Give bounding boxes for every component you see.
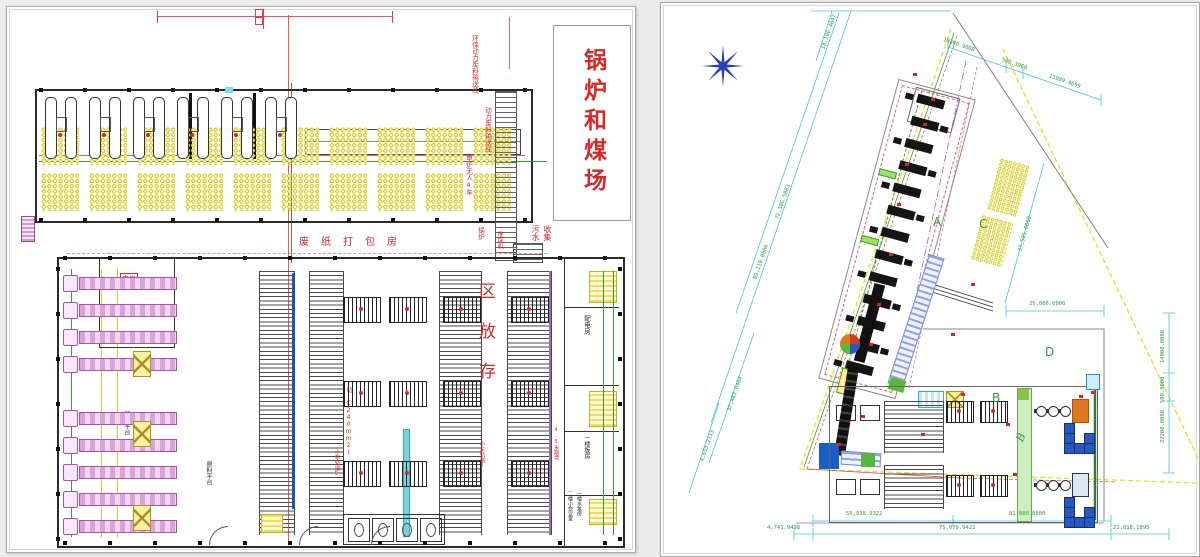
winder-machine <box>389 297 427 323</box>
truck <box>63 356 179 372</box>
cyan-marker <box>225 87 233 93</box>
truck-cab <box>63 464 78 481</box>
truck <box>63 518 179 534</box>
machine-cell <box>276 117 287 132</box>
room-label-3: 二楼小会议室 <box>567 491 572 521</box>
column-dot <box>378 256 382 260</box>
column-dot <box>303 88 307 92</box>
dock-leveler <box>133 505 151 531</box>
dim-bot-5: 21,818.1895 <box>1113 525 1149 531</box>
column-dot <box>333 541 337 545</box>
dim-line-red-top <box>157 16 393 17</box>
red-tick <box>897 203 901 206</box>
column-dot <box>435 88 439 92</box>
dryer-comb <box>980 475 1008 497</box>
area-d-label: D <box>1045 345 1054 359</box>
conveyor-lane <box>309 271 344 535</box>
dock-leveler <box>133 421 151 447</box>
winder-machine <box>511 381 549 407</box>
machine-dot <box>991 483 995 487</box>
winder-machine <box>443 461 481 487</box>
machine-group <box>177 97 211 159</box>
column-dot <box>259 88 263 92</box>
storage-char-1: 区 <box>479 277 496 302</box>
column-dot <box>347 218 351 222</box>
paper-roll-cluster <box>41 173 79 211</box>
room-label-2: 一楼板房 <box>583 435 589 459</box>
machine-dot <box>359 391 363 395</box>
machine-group <box>45 97 79 159</box>
toilet-stall <box>420 518 442 542</box>
truck-trailer <box>79 358 177 371</box>
column-dot <box>108 256 112 260</box>
machine-dot <box>527 391 531 395</box>
truck-trailer <box>79 439 177 452</box>
truck-cab <box>63 275 78 292</box>
paper-roll-cluster <box>281 173 319 211</box>
red-tick <box>961 393 965 396</box>
paper-roll-cluster <box>425 127 463 165</box>
machine-dot <box>957 483 961 487</box>
lane-hatch-2 <box>884 465 944 509</box>
toilet-fixture <box>426 523 436 537</box>
red-tick <box>861 415 865 418</box>
column-dot <box>56 537 60 541</box>
shaft-disc <box>1060 480 1071 491</box>
green-strip <box>1017 388 1032 522</box>
door-arc <box>299 526 318 545</box>
paper-roll-cluster <box>233 173 271 211</box>
area-c-label: C <box>979 217 987 231</box>
dim-tick <box>157 11 158 23</box>
column-dot <box>215 88 219 92</box>
column-dot <box>513 541 517 545</box>
red-tick <box>1091 391 1095 394</box>
column-dot <box>153 256 157 260</box>
truck <box>63 437 179 453</box>
column-dot <box>171 88 175 92</box>
toilet-fixture <box>402 523 412 537</box>
red-tick <box>913 73 917 76</box>
column-dot <box>243 256 247 260</box>
boiler-coal-yard-box: 锅炉和煤场 <box>553 25 631 221</box>
winder-machine <box>343 297 381 323</box>
room-divider <box>565 431 619 432</box>
shaft-disc <box>1036 480 1047 491</box>
conveyor-label-1: 环保动力废料输送线 <box>471 35 478 94</box>
lane-hatch-1 <box>884 401 944 453</box>
column-dot <box>198 256 202 260</box>
paper-roll-cluster <box>425 173 463 211</box>
column-dot <box>127 88 131 92</box>
machine-dot <box>405 471 409 475</box>
column-dot <box>108 541 112 545</box>
column-dot <box>83 218 87 222</box>
column-dot <box>153 541 157 545</box>
column-dot <box>243 541 247 545</box>
column-dot <box>83 88 87 92</box>
column-dot <box>479 218 483 222</box>
dock-leveler <box>133 351 151 377</box>
press-unit <box>836 479 856 495</box>
machine-dot <box>190 133 194 137</box>
blue-tank <box>1086 374 1100 390</box>
column-dot <box>56 267 60 271</box>
toilet-stall <box>348 518 370 542</box>
dim-right-2: 500.0000 <box>1160 361 1166 403</box>
paper-roll-cluster <box>377 173 415 211</box>
column-dot <box>198 541 202 545</box>
truck-trailer <box>79 520 177 533</box>
machine-dot <box>405 391 409 395</box>
column-dot <box>288 541 292 545</box>
column-dot <box>333 256 337 260</box>
red-tick <box>1079 395 1083 398</box>
truck <box>63 329 179 345</box>
ramp-hatch <box>21 216 35 242</box>
column-dot <box>603 256 607 260</box>
winder-machine <box>443 381 481 407</box>
rotary-drum-fan <box>839 333 861 355</box>
truck-trailer <box>79 412 177 425</box>
green-dim-line <box>603 271 604 535</box>
column-dot <box>56 492 60 496</box>
room-label-1: 配电房 <box>583 315 590 335</box>
corridor-line <box>549 271 551 535</box>
machine-group <box>89 97 123 159</box>
truck-cab <box>63 518 78 535</box>
column-dot <box>468 256 472 260</box>
machine-cell <box>144 117 155 132</box>
left-drawing-sheet[interactable]: 锅炉和煤场 环保动力废料输送线 动力废料输送线 电炉无人4车 锅炉 废纸打包房 … <box>6 6 636 553</box>
paper-roll-cluster <box>329 127 367 165</box>
pipe-elbow <box>1084 443 1095 454</box>
machine-cell <box>188 117 199 132</box>
room-divider <box>565 495 619 496</box>
sewage-label-2: 收集 <box>543 225 551 241</box>
machine-dot <box>459 391 463 395</box>
column-dot <box>523 88 527 92</box>
column-dot <box>259 218 263 222</box>
shaft-disc <box>1036 406 1047 417</box>
truck <box>63 491 179 507</box>
column-dot <box>558 256 562 260</box>
paper-roll-cluster <box>185 173 223 211</box>
dim-tick <box>263 9 264 29</box>
dim-line-mid <box>67 253 547 254</box>
winder-machine <box>343 381 381 407</box>
winder-machine <box>389 461 427 487</box>
column-dot <box>63 541 67 545</box>
dim-bot-4: 75,079.9422 <box>939 525 975 531</box>
storage-char-3: 存 <box>479 357 496 382</box>
column-dot <box>603 541 607 545</box>
red-tick <box>1013 473 1017 476</box>
dim-mark <box>255 9 263 17</box>
dryer-comb <box>946 401 974 423</box>
room-label-4: 一楼水泵房 <box>576 491 581 516</box>
column-dot <box>558 541 562 545</box>
boiler-small-label: 锅炉 <box>477 227 484 240</box>
truck <box>63 302 179 318</box>
boiler-coal-yard-label: 锅炉和煤场 <box>581 48 604 198</box>
area-a-label: A <box>933 215 941 229</box>
paper-roll-cluster <box>137 173 175 211</box>
red-tick <box>1006 423 1010 426</box>
end-unit <box>1072 399 1089 423</box>
column-dot <box>391 88 395 92</box>
machine-dot <box>459 307 463 311</box>
column-dot <box>618 402 622 406</box>
column-dot <box>618 357 622 361</box>
green-dim-line <box>613 271 614 535</box>
press-unit <box>860 405 880 421</box>
column-dot <box>423 541 427 545</box>
machine-dot <box>146 133 150 137</box>
building-b-machine-hall <box>829 386 1098 523</box>
column-dot <box>303 218 307 222</box>
pipe-elbow <box>1084 517 1095 528</box>
green-strip-head <box>1018 389 1029 400</box>
column-dot <box>39 218 43 222</box>
stacker-label: 堆垛机 <box>496 231 502 249</box>
machine-dot <box>527 307 531 311</box>
shaft-disc <box>1060 406 1071 417</box>
dryer-comb <box>946 475 974 497</box>
truck-cab <box>63 329 78 346</box>
right-drawing-sheet[interactable]: A C B D B 10360.9008 500.3960 15900.4699… <box>660 2 1200 557</box>
winder-machine <box>443 297 481 323</box>
truck-cab <box>63 410 78 427</box>
red-tick <box>905 163 909 166</box>
north-star-icon <box>701 44 745 88</box>
conveyor-lane <box>259 271 295 535</box>
toilet-stall <box>396 518 418 542</box>
machine-group <box>133 97 167 159</box>
dim-tick <box>392 11 393 23</box>
column-dot <box>63 256 67 260</box>
toilet-fixture <box>354 523 364 537</box>
red-tick <box>921 433 925 436</box>
red-tick <box>889 253 893 256</box>
winder-machine <box>343 461 381 487</box>
shaft-disc <box>1048 406 1059 417</box>
pipe-elbow <box>1084 507 1095 518</box>
truck <box>63 275 179 291</box>
paper-roll-cluster <box>377 127 415 165</box>
bottom-building-production-hall: 电房 卸货平台 原料平台 切(C240mm2) 区 放 存 小车轨道3 小车轨道… <box>57 257 625 548</box>
baling-room-label: 废纸打包房 <box>299 233 409 248</box>
column-dot <box>56 447 60 451</box>
machine-cell <box>56 117 67 132</box>
dim-bot-2: 81,000.0000 <box>1009 511 1045 517</box>
column-dot <box>618 537 622 541</box>
cable-tray <box>292 273 295 509</box>
column-dot <box>56 402 60 406</box>
winder-machine <box>511 461 549 487</box>
truck-cab <box>63 491 78 508</box>
area-b-label: B <box>992 391 1000 405</box>
wall-note: 4.5米隔墙 <box>553 427 558 460</box>
machine-group <box>221 97 255 159</box>
machine-dot <box>957 409 961 413</box>
column-dot <box>347 88 351 92</box>
truck-trailer <box>79 331 177 344</box>
truck-trailer <box>79 304 177 317</box>
column-dot <box>171 218 175 222</box>
dim-mid-2: 25,006.0000 <box>1029 301 1065 307</box>
shaft-disc <box>1048 480 1059 491</box>
paper-roll-cluster <box>329 173 367 211</box>
machine-cell <box>100 117 111 132</box>
column-dot <box>618 492 622 496</box>
machine-dot <box>234 133 238 137</box>
conveyor-label-3: 电炉无人4车 <box>465 155 472 196</box>
truck-cab <box>63 356 78 373</box>
column-dot <box>215 218 219 222</box>
machine-dot <box>278 133 282 137</box>
column-dot <box>618 447 622 451</box>
pipe-elbow <box>1084 433 1095 444</box>
conveyor-label-2: 动力废料输送线 <box>484 107 491 153</box>
column-dot <box>435 218 439 222</box>
red-tick <box>971 283 975 286</box>
pump-room-hatch <box>261 514 283 533</box>
storage-char-2: 放 <box>479 317 496 342</box>
winder-machine <box>389 381 427 407</box>
column-dot <box>513 256 517 260</box>
red-tick <box>869 343 873 346</box>
press-unit <box>860 479 880 495</box>
column-dot <box>479 88 483 92</box>
cad-workspace: 锅炉和煤场 环保动力废料输送线 动力废料输送线 电炉无人4车 锅炉 废纸打包房 … <box>0 0 1200 557</box>
truck-trailer <box>79 493 177 506</box>
dim-bot-3: 4,741.9498 <box>767 525 800 531</box>
column-dot <box>618 312 622 316</box>
red-tick <box>951 333 955 336</box>
machine-dot <box>405 307 409 311</box>
paper-roll-cluster <box>89 173 127 211</box>
column-dot <box>391 218 395 222</box>
end-unit <box>1072 473 1089 497</box>
machine-dot <box>58 133 62 137</box>
press-unit <box>836 405 856 421</box>
machine-group <box>265 97 299 159</box>
column-dot <box>127 218 131 222</box>
truck-trailer <box>79 466 177 479</box>
toilet-room <box>343 514 445 545</box>
column-dot <box>288 256 292 260</box>
track5-label: 小车轨道5 <box>333 449 339 477</box>
top-building-coal-shed <box>35 89 533 223</box>
red-tick <box>877 303 881 306</box>
door-arc <box>209 526 228 545</box>
material-platform-label: 原料平台 <box>205 461 211 485</box>
dim-bot-1: 55,938.9322 <box>846 511 882 517</box>
truck-cab <box>63 437 78 454</box>
column-dot <box>56 312 60 316</box>
room-divider <box>565 307 619 308</box>
truck <box>63 410 179 426</box>
machine-dot <box>459 471 463 475</box>
dim-mark <box>255 17 263 25</box>
red-tick <box>923 123 927 126</box>
machine-dot <box>102 133 106 137</box>
dim-tick-vertical <box>509 17 510 69</box>
rooms-column: 配电房 一楼板房 二楼小会议室 一楼水泵房 <box>564 259 619 546</box>
machine-dot <box>359 307 363 311</box>
column-dot <box>378 541 382 545</box>
column-dot <box>618 267 622 271</box>
red-tick <box>931 98 935 101</box>
column-dot <box>56 357 60 361</box>
dim-right-1: 14000.0000 <box>1160 321 1166 363</box>
machine-dot <box>527 471 531 475</box>
winder-machine <box>511 297 549 323</box>
column-dot <box>423 256 427 260</box>
machine-cell <box>232 117 243 132</box>
column-dot <box>39 88 43 92</box>
machine-dot <box>991 409 995 413</box>
truck-trailer <box>79 277 177 290</box>
truck-cab <box>63 302 78 319</box>
column-dot <box>468 541 472 545</box>
truck <box>63 464 179 480</box>
column-dot <box>523 218 527 222</box>
room-divider <box>565 385 619 386</box>
red-tick <box>837 443 841 446</box>
machine-dot <box>359 471 363 475</box>
sewage-label-1: 污水 <box>531 225 539 241</box>
dim-right-3: 22200.0000 <box>1160 401 1166 443</box>
